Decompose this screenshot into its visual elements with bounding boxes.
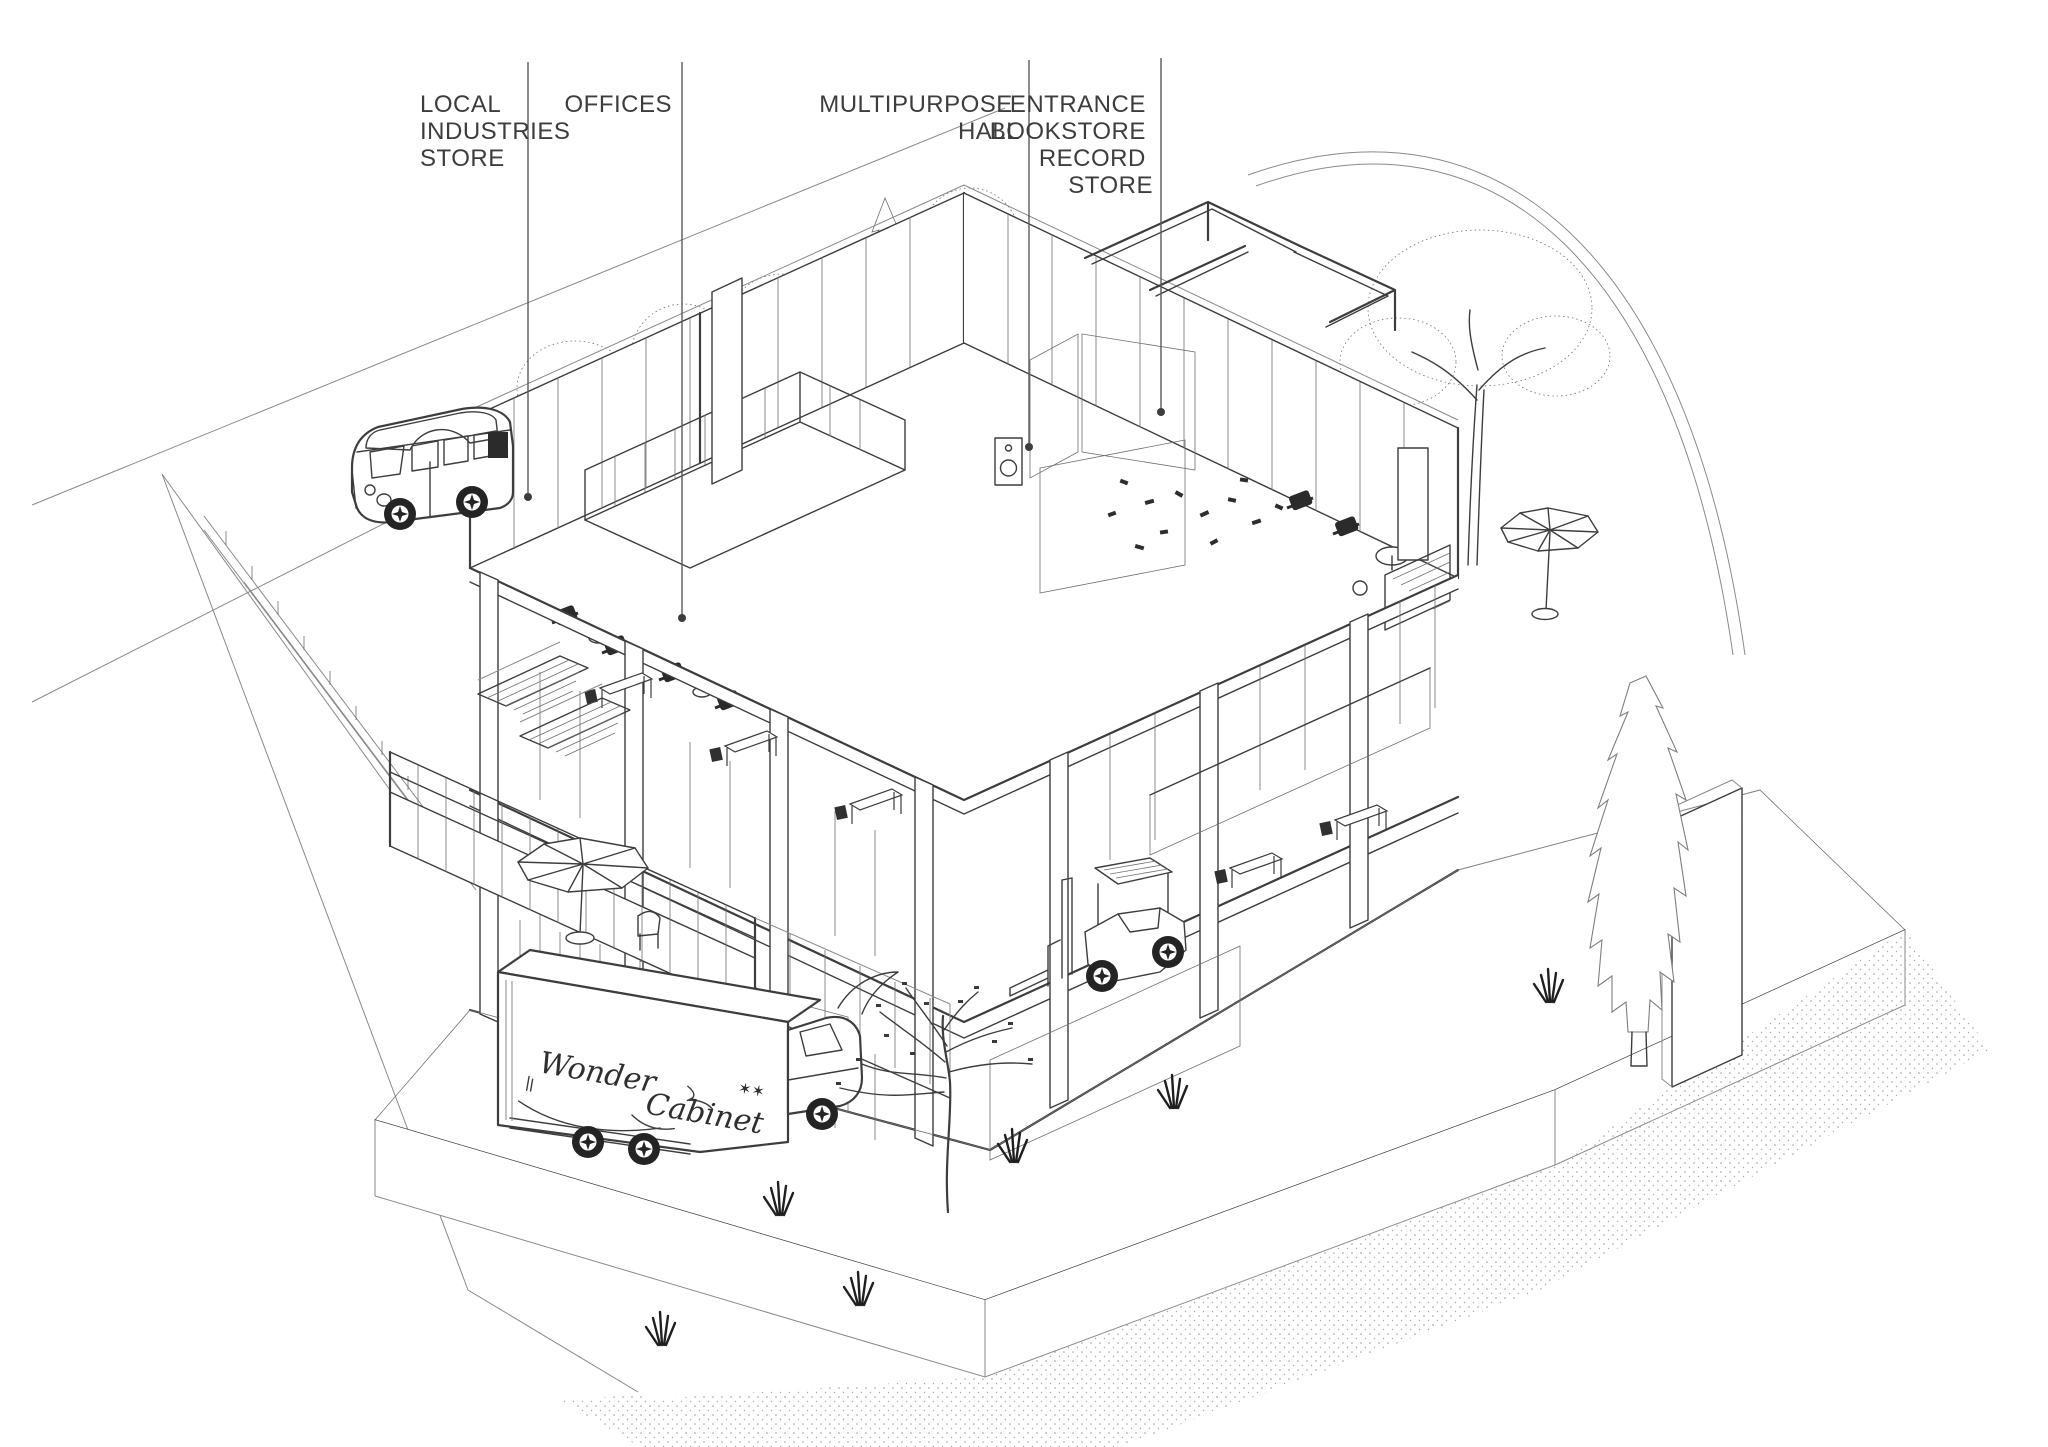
label-entrance-bookstore-record-store: ENTRANCE BOOKSTORE RECORD STORE bbox=[990, 91, 1153, 199]
label-line: MULTIPURPOSE bbox=[819, 91, 1013, 118]
label-offices: OFFICES bbox=[564, 91, 672, 118]
deck-umbrella bbox=[1501, 508, 1598, 620]
delivery-truck: Wonder Cabinet ✶✶ bbox=[498, 950, 898, 1165]
label-line: OFFICES bbox=[564, 91, 672, 118]
label-line: STORE bbox=[1068, 172, 1153, 199]
annotation-labels: LOCAL INDUSTRIES STORE OFFICES MULTIPURP… bbox=[420, 91, 1153, 199]
label-local-industries-store: LOCAL INDUSTRIES STORE bbox=[420, 91, 578, 172]
interior-pier bbox=[712, 278, 742, 484]
stairs bbox=[478, 642, 630, 756]
label-line: RECORD bbox=[1039, 145, 1146, 172]
label-line: STORE bbox=[420, 145, 505, 172]
forklift bbox=[1010, 858, 1186, 996]
label-line: ENTRANCE bbox=[1010, 91, 1146, 118]
label-line: BOOKSTORE bbox=[990, 118, 1146, 145]
label-line: INDUSTRIES bbox=[420, 118, 570, 145]
label-line: LOCAL bbox=[420, 91, 500, 118]
axonometric-architecture-drawing: Wonder Cabinet ✶✶ bbox=[0, 0, 2048, 1447]
